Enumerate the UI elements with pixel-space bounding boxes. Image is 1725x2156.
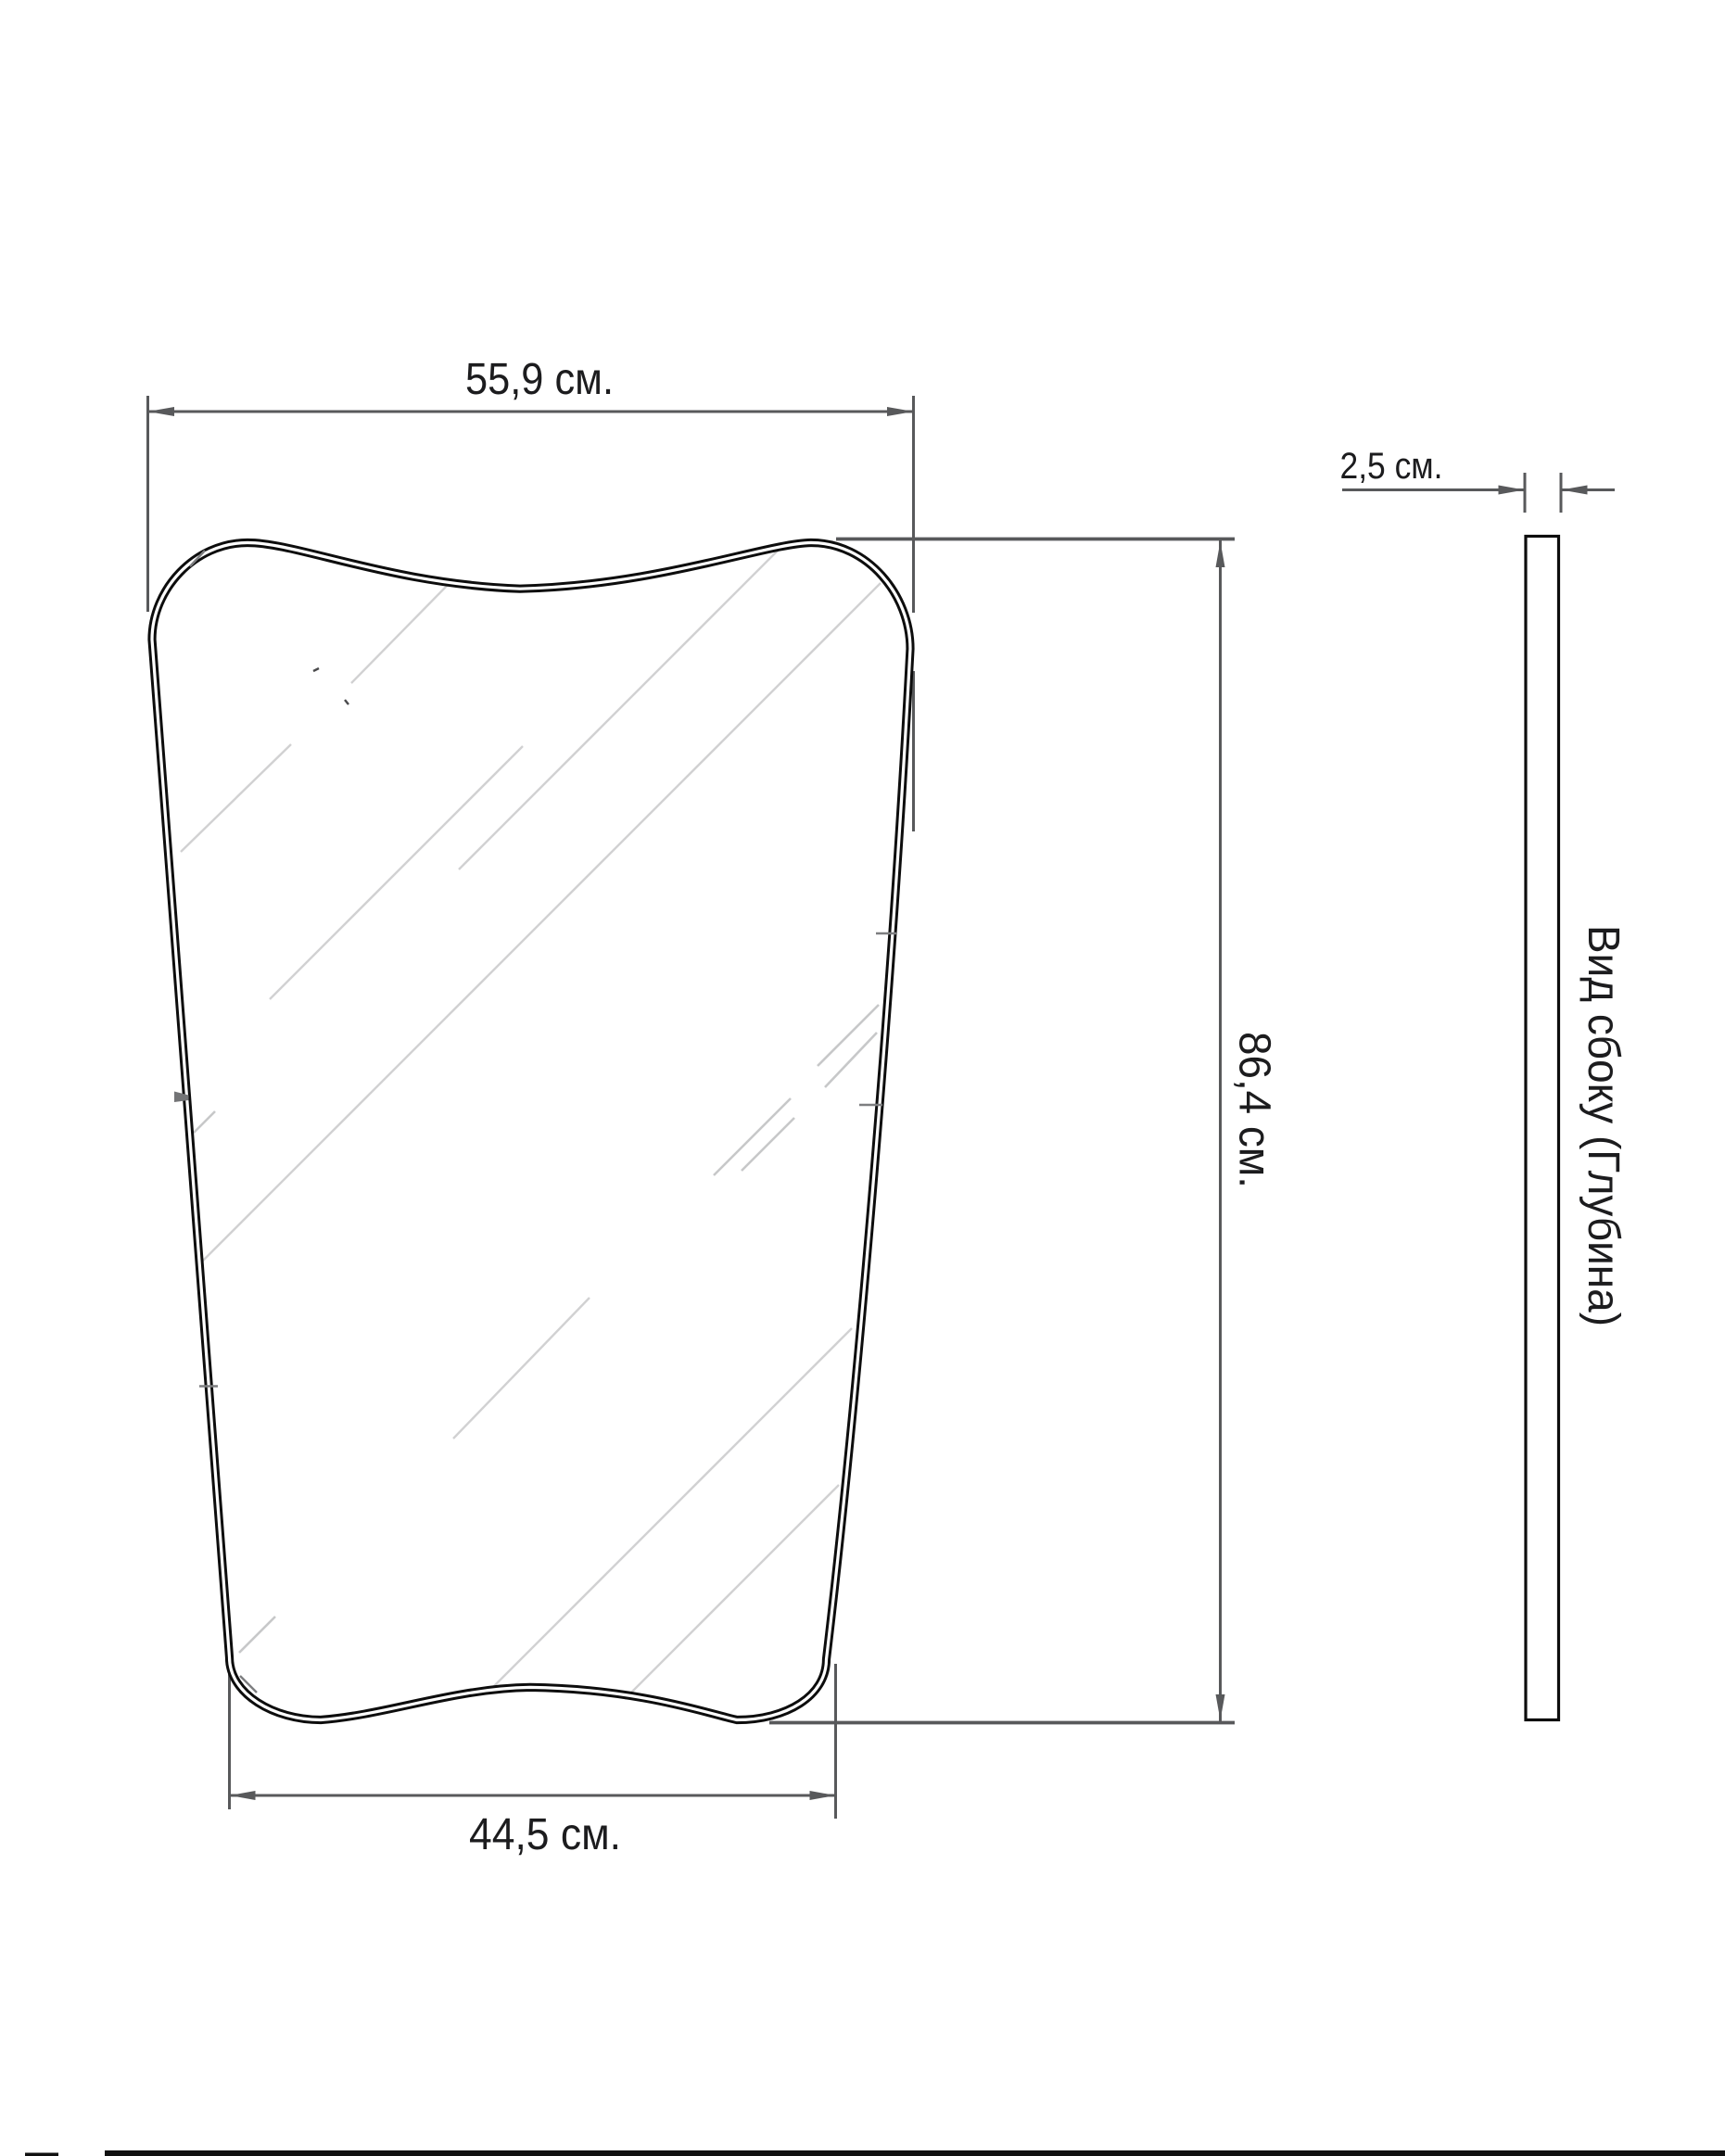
svg-text:55,9 см.: 55,9 см. bbox=[465, 355, 614, 404]
svg-text:2,5 см.: 2,5 см. bbox=[1340, 446, 1443, 487]
svg-text:44,5 см.: 44,5 см. bbox=[469, 1810, 621, 1859]
svg-text:Вид сбоку (Глубина): Вид сбоку (Глубина) bbox=[1579, 925, 1628, 1326]
svg-text:86,4 см.: 86,4 см. bbox=[1230, 1032, 1279, 1188]
